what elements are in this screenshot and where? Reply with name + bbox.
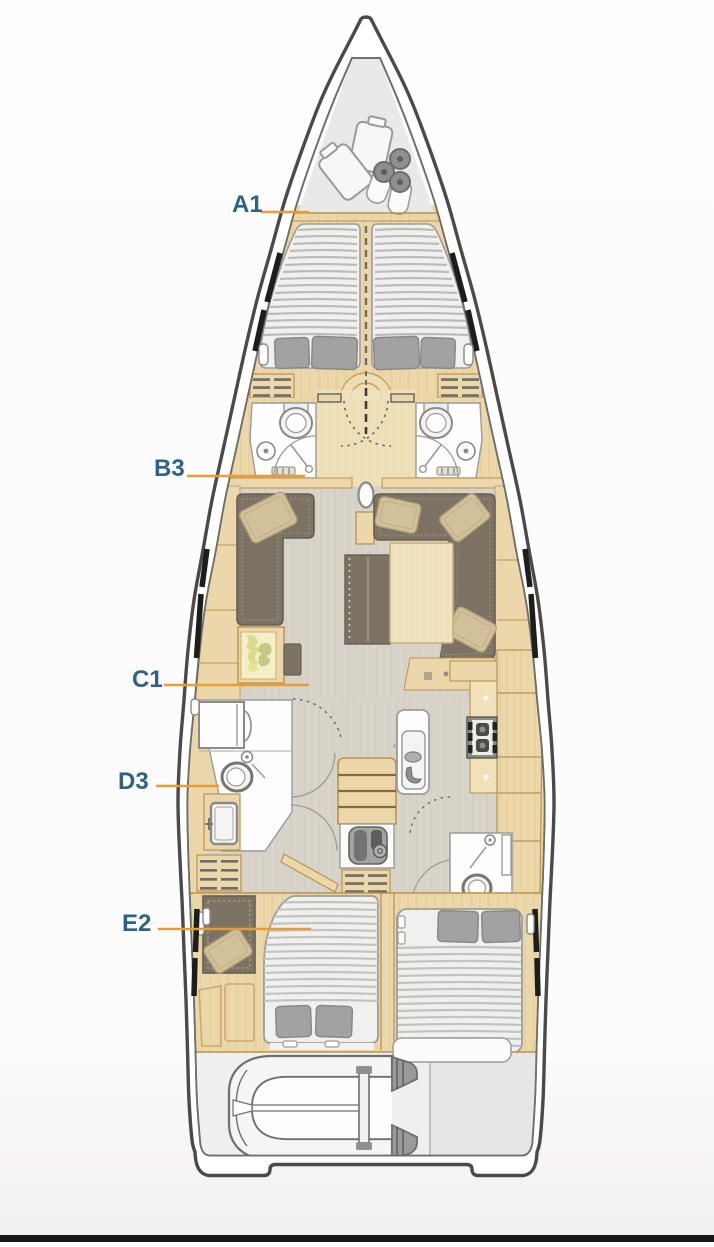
svg-text:E2: E2 <box>122 910 151 937</box>
svg-text:C1: C1 <box>132 666 163 693</box>
svg-text:B3: B3 <box>154 455 185 482</box>
svg-text:D3: D3 <box>118 768 149 795</box>
svg-text:A1: A1 <box>232 191 263 218</box>
